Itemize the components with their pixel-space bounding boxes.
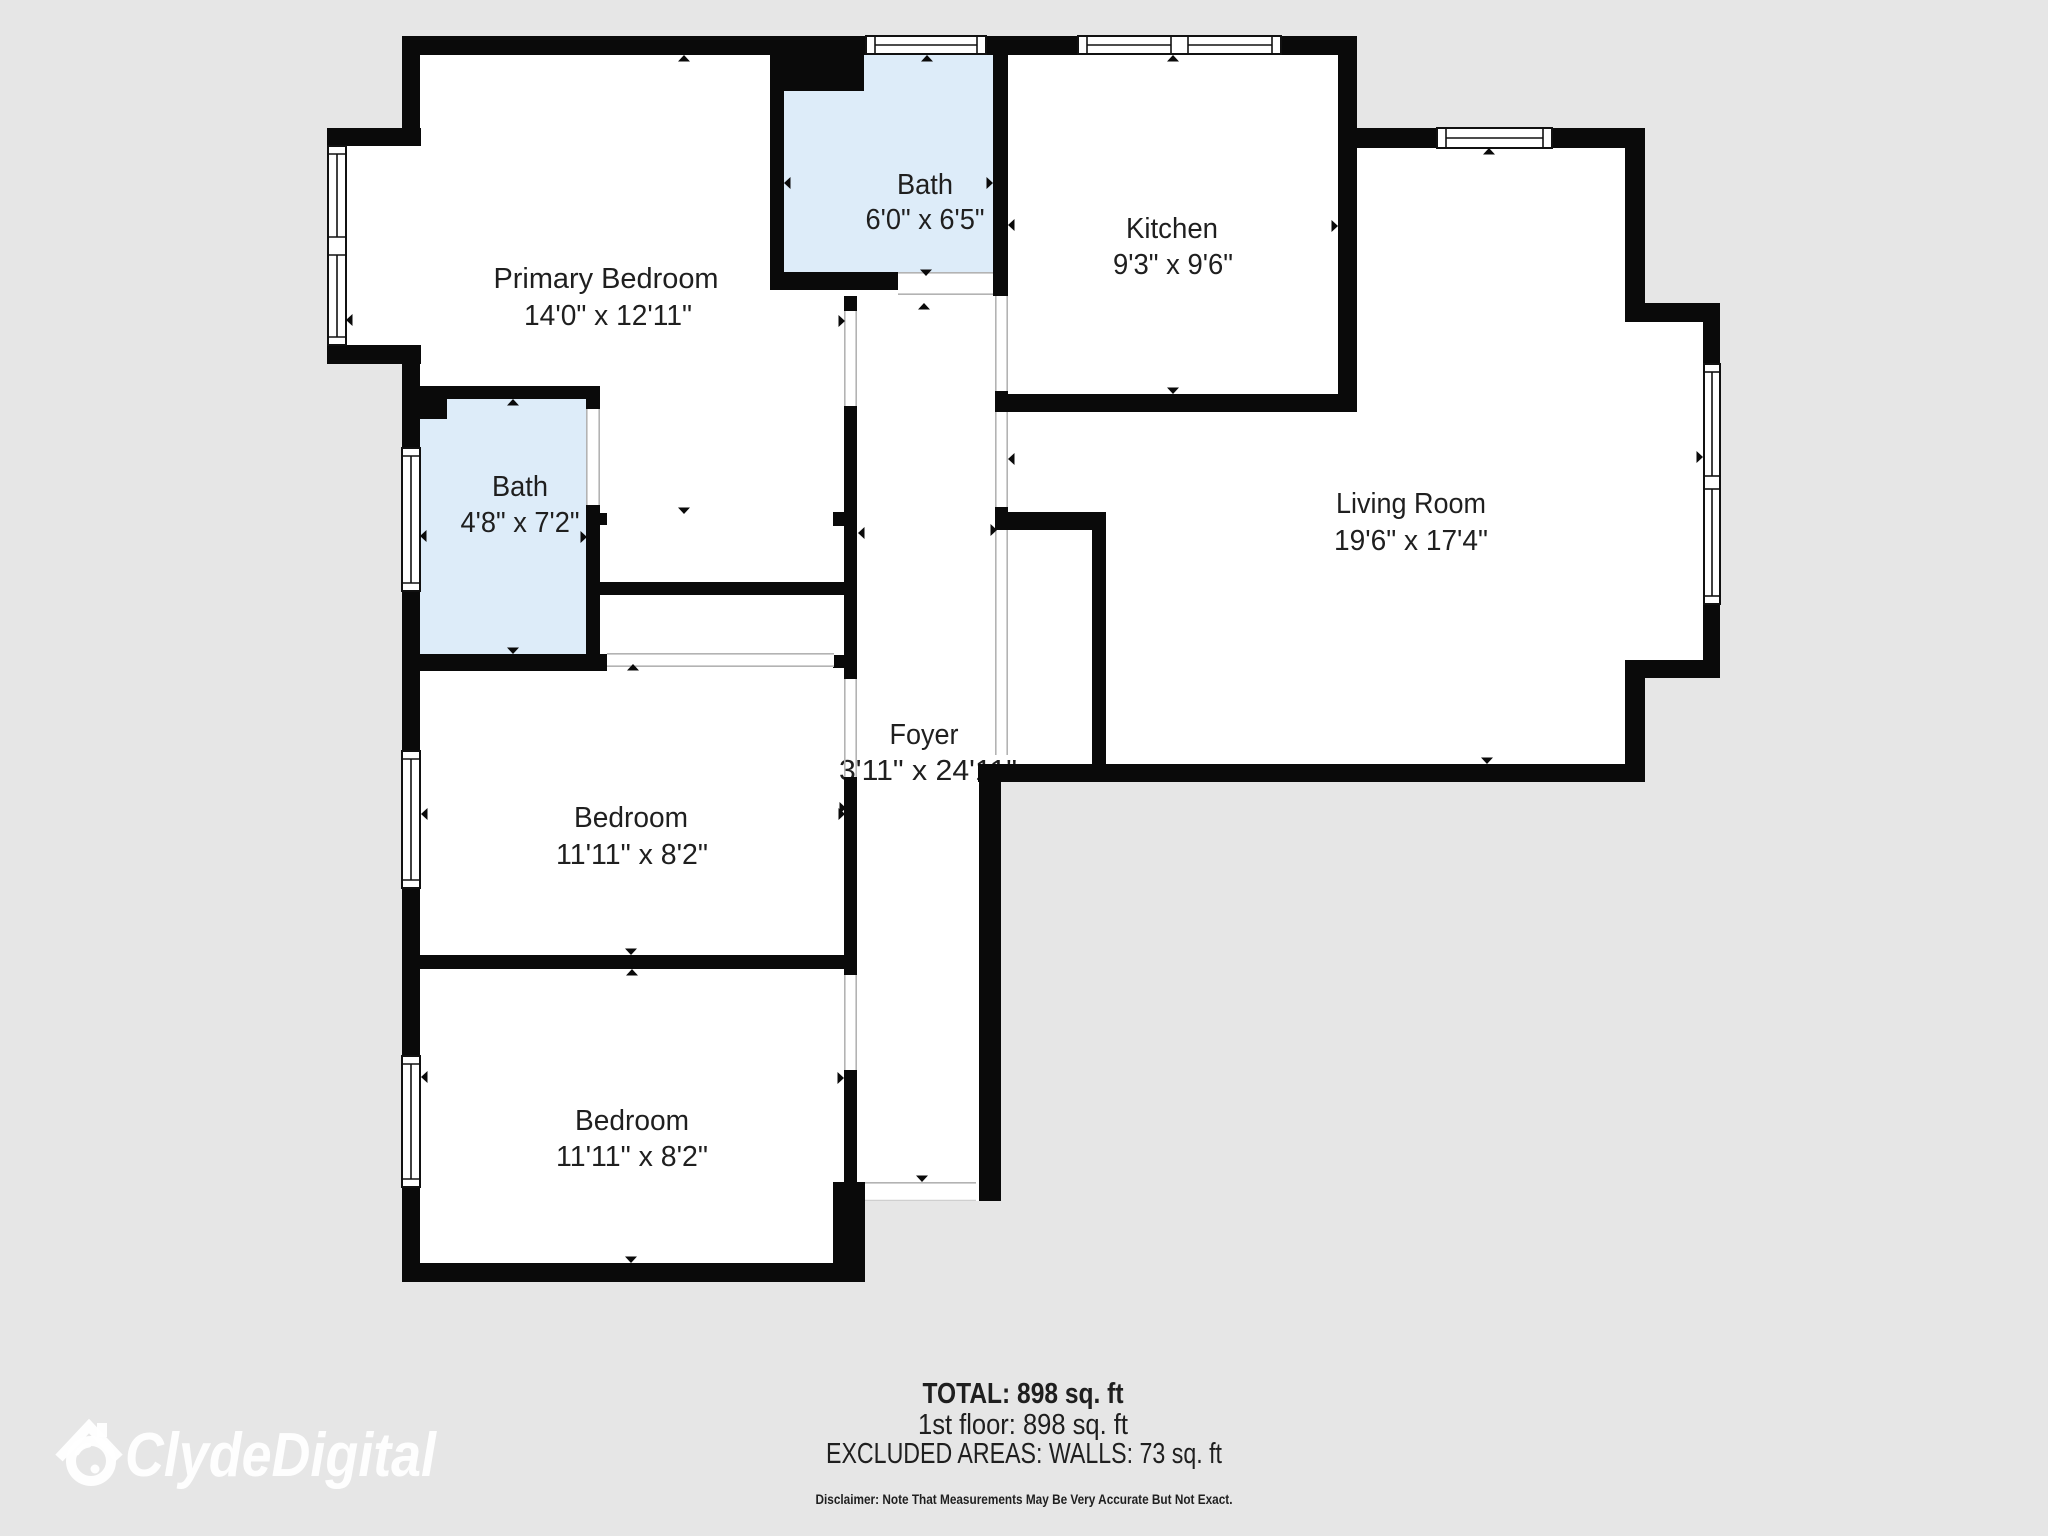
svg-text:14'0" x 12'11": 14'0" x 12'11": [524, 300, 692, 332]
svg-text:Living Room: Living Room: [1336, 488, 1486, 520]
svg-text:Kitchen: Kitchen: [1126, 213, 1218, 245]
svg-text:11'11" x 8'2": 11'11" x 8'2": [556, 1141, 708, 1173]
svg-text:TOTAL: 898 sq. ft: TOTAL: 898 sq. ft: [923, 1378, 1124, 1410]
svg-text:Disclaimer: Note That Measurem: Disclaimer: Note That Measurements May B…: [816, 1491, 1233, 1507]
svg-text:4'8" x 7'2": 4'8" x 7'2": [461, 507, 580, 539]
svg-text:1st floor: 898 sq. ft: 1st floor: 898 sq. ft: [918, 1409, 1128, 1441]
svg-text:ClydeDigital: ClydeDigital: [125, 1421, 438, 1490]
svg-text:Bath: Bath: [492, 471, 548, 503]
svg-text:6'0" x 6'5": 6'0" x 6'5": [866, 204, 985, 236]
svg-text:Bedroom: Bedroom: [574, 802, 688, 834]
svg-text:Bath: Bath: [897, 169, 953, 201]
svg-text:11'11" x 8'2": 11'11" x 8'2": [556, 839, 708, 871]
svg-text:19'6" x 17'4": 19'6" x 17'4": [1334, 525, 1488, 557]
svg-text:Primary Bedroom: Primary Bedroom: [494, 263, 719, 295]
svg-text:Foyer: Foyer: [890, 719, 959, 751]
svg-text:Bedroom: Bedroom: [575, 1105, 689, 1137]
svg-text:9'3" x 9'6": 9'3" x 9'6": [1113, 249, 1233, 281]
svg-text:EXCLUDED AREAS: WALLS: 73 sq.: EXCLUDED AREAS: WALLS: 73 sq. ft: [826, 1438, 1222, 1470]
